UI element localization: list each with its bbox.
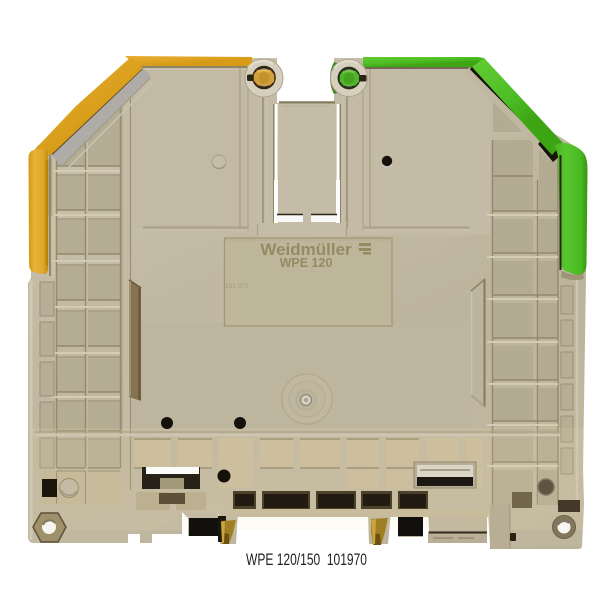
svg-text:WPE 120/150 101970: WPE 120/150 101970 [246,551,367,569]
svg-text:101 970: 101 970 [225,283,249,290]
svg-text:WPE 120: WPE 120 [280,256,333,270]
